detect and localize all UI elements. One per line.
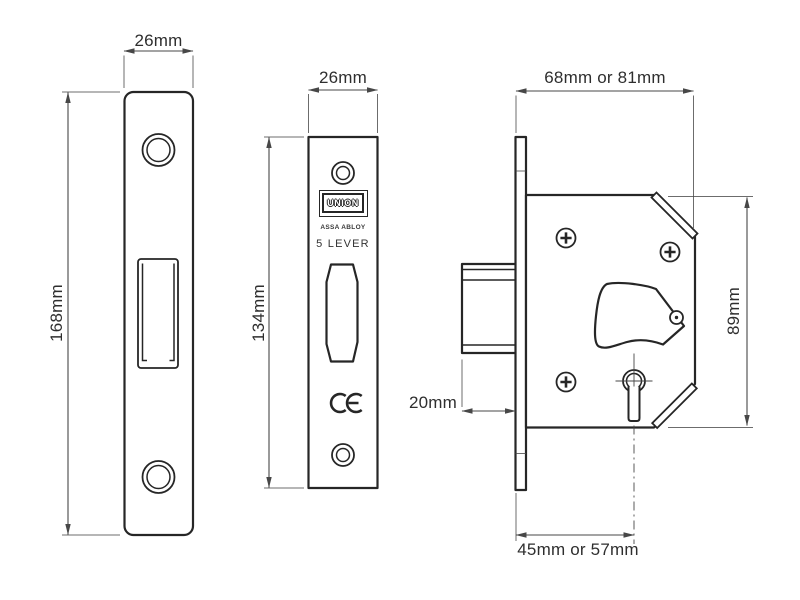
case-screw-bottom-left <box>557 373 576 392</box>
union-logo: UNION <box>319 190 368 217</box>
backset-label: 45mm or 57mm <box>498 540 658 560</box>
lever-pivot-dot <box>675 316 678 319</box>
lock-body-view <box>462 137 697 544</box>
case-width-label: 68mm or 81mm <box>525 68 685 88</box>
faceplate-width-label: 26mm <box>308 68 378 88</box>
case-height-label: 89mm <box>724 276 744 346</box>
assa-abloy-text: ASSA ABLOY <box>313 224 373 231</box>
diagram-canvas <box>0 0 800 600</box>
lock-bolt-side <box>462 264 516 353</box>
strike-plate-view <box>125 92 194 535</box>
bolt-throw-label: 20mm <box>397 393 457 413</box>
union-logo-text: UNION <box>327 198 359 208</box>
strike-plate-height-label: 168mm <box>47 273 67 353</box>
faceplate-top-screw-hole <box>332 162 354 184</box>
faceplate-deadbolt <box>327 265 358 362</box>
five-lever-text: 5 LEVER <box>303 238 383 250</box>
union-logo-frame: UNION <box>322 193 364 213</box>
case-screw-top-left <box>557 229 576 248</box>
strike-plate-bolt-cutout <box>138 259 178 368</box>
case-screw-top-right <box>661 243 680 262</box>
lock-forend-strip <box>516 137 527 490</box>
faceplate-height-label: 134mm <box>249 273 269 353</box>
faceplate-bottom-screw-hole <box>332 444 354 466</box>
keyhole-slot <box>629 387 640 422</box>
strike-plate-width-label: 26mm <box>124 31 193 51</box>
lock-dimension-diagram: 26mm 168mm 26mm 134mm 68mm or 81mm 89mm … <box>0 0 800 600</box>
